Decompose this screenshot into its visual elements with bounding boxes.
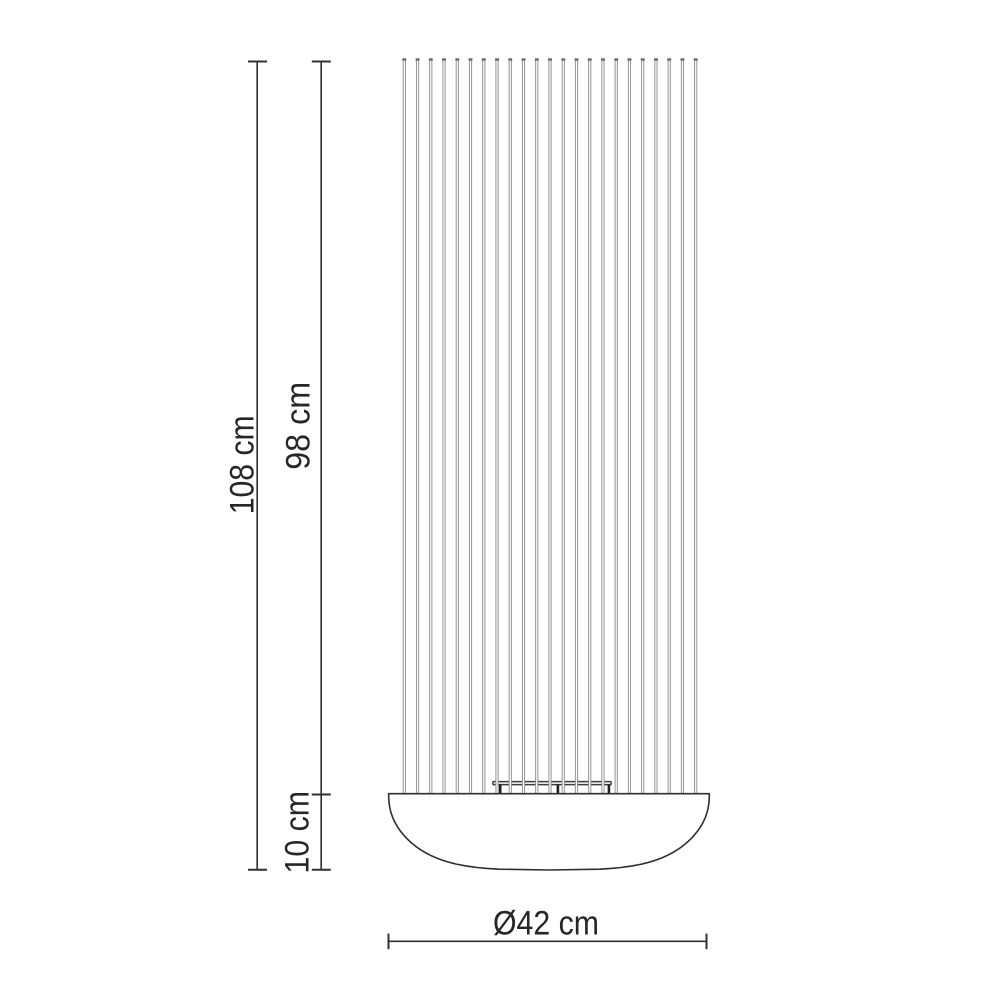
svg-text:10 cm: 10 cm [279,791,317,874]
svg-text:Ø42 cm: Ø42 cm [493,904,599,942]
svg-text:108 cm: 108 cm [224,415,262,514]
svg-text:98 cm: 98 cm [279,382,317,470]
